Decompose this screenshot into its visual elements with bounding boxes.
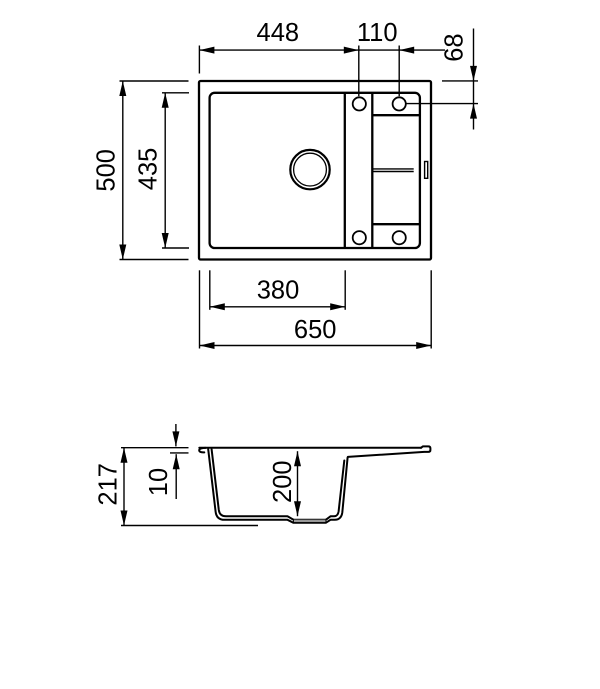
svg-text:10: 10 [145,468,173,496]
svg-text:650: 650 [294,316,337,344]
svg-text:435: 435 [135,148,163,191]
svg-text:68: 68 [441,33,469,61]
svg-text:448: 448 [257,19,300,47]
svg-text:217: 217 [95,463,123,506]
svg-text:200: 200 [269,460,297,503]
svg-text:500: 500 [93,149,121,192]
svg-text:110: 110 [357,19,398,47]
svg-text:380: 380 [257,277,300,305]
